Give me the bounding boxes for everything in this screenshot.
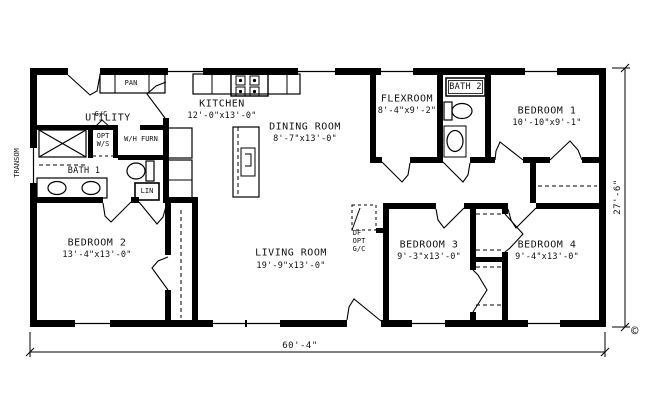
wall-living-bedroom3 (383, 203, 389, 327)
wall-closet4-left (470, 312, 476, 327)
bedroom1-door-swing (495, 142, 523, 160)
bedroom3-door-swing (436, 208, 464, 228)
toilet-tank (146, 161, 154, 181)
rear-door-swing (347, 299, 381, 321)
bedroom2-door-swing (139, 202, 167, 224)
wall-openings (30, 68, 560, 327)
wall-closet3-left (470, 209, 476, 262)
burner-dot (240, 80, 242, 82)
bath2-door-swing (443, 162, 470, 182)
wall-ws-side (113, 125, 118, 158)
dimension-overall-width: 60'-4" (279, 341, 321, 351)
room-dims-living: 19'-9"x13'-0" (256, 261, 325, 271)
toilet-icon (447, 131, 463, 152)
wall-closet4-right (502, 262, 508, 327)
wall-utility-bath (37, 125, 118, 130)
floor-plan-drawing (0, 0, 651, 416)
room-label-flexroom: FLEXROOM (381, 94, 433, 105)
wall-hall-north (582, 157, 599, 163)
bed1-closet-door-swing (550, 141, 582, 160)
room-label-bath2: BATH 2 (449, 82, 482, 92)
front-door-swing (68, 75, 100, 95)
room-label-bedroom4: BEDROOM 4 (518, 240, 577, 251)
label-opt-gc-1: OPT (353, 237, 366, 245)
wall-hall-south (383, 203, 436, 209)
label-pantry: PAN (125, 79, 138, 87)
kitchen-counter (193, 74, 300, 94)
burner-dot (254, 91, 256, 93)
wall-nook-stub (376, 228, 389, 233)
label-opt-ws-1: OPT (97, 132, 110, 140)
opt-gc-cabinet-front (352, 208, 360, 230)
toilet-icon (127, 163, 145, 179)
label-linen: LIN (141, 187, 154, 195)
wall-hall-north (370, 157, 382, 163)
rear-door-opening (347, 320, 381, 327)
wall-hall-south (464, 203, 508, 209)
room-label-bedroom1: BEDROOM 1 (518, 106, 577, 117)
room-label-bedroom3: BEDROOM 3 (400, 240, 459, 251)
wall-hall-north (410, 157, 443, 163)
bedroom4-door-swing (508, 208, 536, 228)
wall-utility-bath (140, 125, 163, 130)
sink-icon (452, 104, 472, 119)
wall-bed2-closet-left (165, 290, 171, 327)
room-label-bedroom2: BEDROOM 2 (68, 238, 127, 249)
island-sink-divider (245, 154, 251, 166)
closet4-door-swing (473, 270, 487, 312)
wall-bed2-closet-right (192, 203, 198, 327)
burner-dot (240, 91, 242, 93)
room-label-dining: DINING ROOM (269, 122, 341, 133)
sink-icon (48, 182, 66, 195)
wall-flexroom-bath2 (437, 75, 443, 163)
wall-hall-south (536, 203, 599, 209)
room-label-bath1: BATH 1 (68, 166, 101, 176)
utility-door-swing (147, 82, 166, 118)
label-df: DF (353, 229, 361, 237)
flexroom-door-swing (382, 162, 410, 182)
room-label-living: LIVING ROOM (255, 248, 327, 259)
wall-hall-north (470, 157, 495, 163)
wall-closet3-right (502, 209, 508, 214)
label-wh-furn: W/H FURN (124, 135, 158, 143)
island-sink-icon (241, 148, 255, 176)
exterior-wall-right (599, 68, 606, 327)
copyright-mark: © (631, 324, 639, 338)
room-dims-kitchen: 12'-0"x13'-0" (187, 111, 256, 121)
exterior-wall-bottom (30, 320, 606, 327)
room-label-kitchen: KITCHEN (199, 99, 245, 110)
wall-closet-divider (470, 257, 508, 262)
room-label-utility: UTILITY (85, 113, 131, 124)
wall-furnace-bottom (118, 155, 163, 160)
label-gc-utility: G/C (95, 110, 108, 118)
front-door-opening (68, 68, 100, 75)
wall-bath2-bedroom1 (485, 75, 491, 163)
wall-bed2-closet-left (165, 203, 171, 255)
wall-shower-side (88, 125, 93, 158)
bath1-door-swing (103, 202, 131, 222)
floor-plan: UTILITY KITCHEN 12'-0"x13'-0" DINING ROO… (0, 0, 651, 416)
room-dims-bedroom1: 10'-10"x9'-1" (512, 118, 581, 128)
dimension-overall-height: 27'-6" (613, 176, 623, 218)
wall-dining-flexroom (370, 75, 376, 163)
label-opt-gc-2: G/C (353, 245, 366, 253)
bed2-closet-door-swing (152, 257, 168, 290)
label-opt-ws-2: W/S (97, 140, 110, 148)
wall-hall-north (523, 157, 550, 163)
sink-icon (82, 182, 100, 195)
room-dims-bedroom3: 9'-3"x13'-0" (397, 252, 461, 262)
wall-bed1-closet (530, 163, 536, 203)
room-dims-dining: 8'-7"x13'-0" (273, 134, 337, 144)
label-transom: TRANSOM (13, 148, 21, 178)
bath2-vanity (444, 102, 452, 120)
cabinet-icon (168, 128, 192, 158)
room-dims-bedroom2: 13'-4"x13'-0" (62, 250, 131, 260)
opt-gc-cabinet-dashed (352, 205, 376, 230)
room-dims-bedroom4: 9'-4"x13'-0" (515, 252, 579, 262)
room-dims-flexroom: 8'-4"x9'-2" (378, 106, 437, 116)
burner-dot (254, 80, 256, 82)
wall-closet4-left (470, 262, 476, 270)
exterior-wall-left (30, 68, 37, 327)
